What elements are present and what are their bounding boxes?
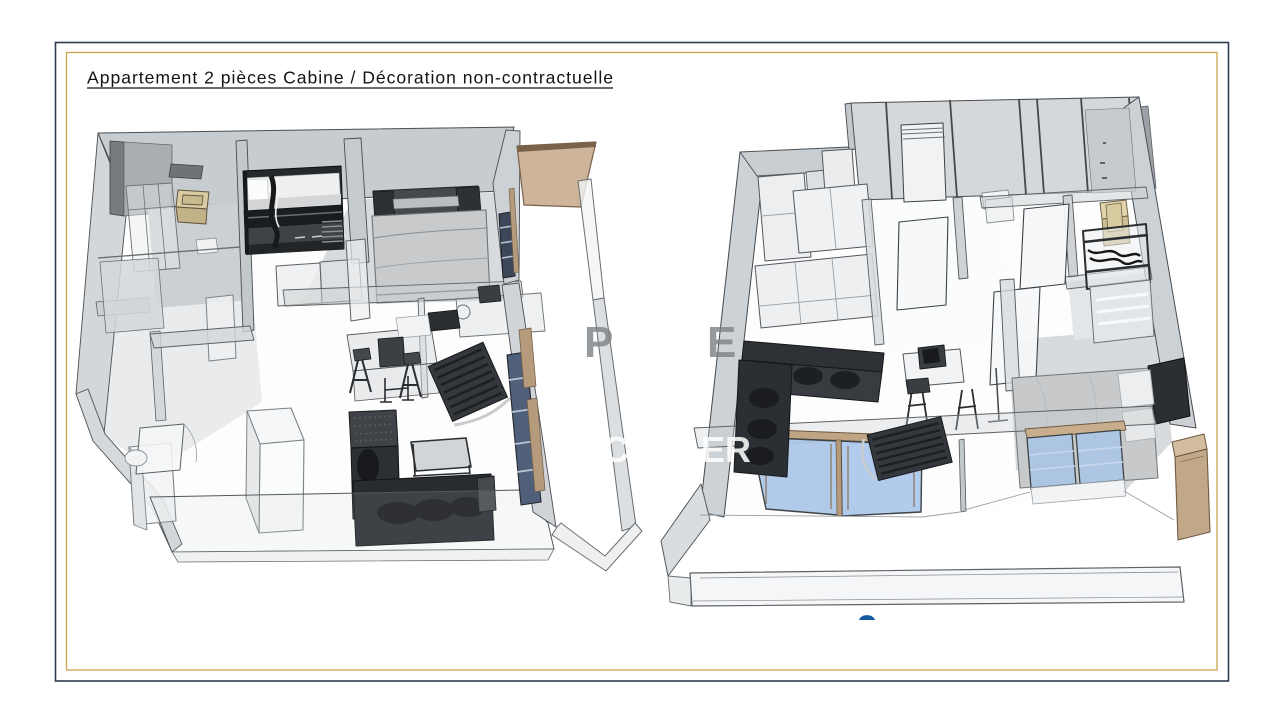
svg-text:E: E <box>707 318 736 367</box>
svg-text:Appartement 2 pièces Cabine /: Appartement 2 pièces Cabine / Décoration… <box>87 68 613 88</box>
svg-text:ER: ER <box>701 429 751 470</box>
svg-text:P: P <box>584 318 613 367</box>
svg-text:C: C <box>603 429 629 470</box>
